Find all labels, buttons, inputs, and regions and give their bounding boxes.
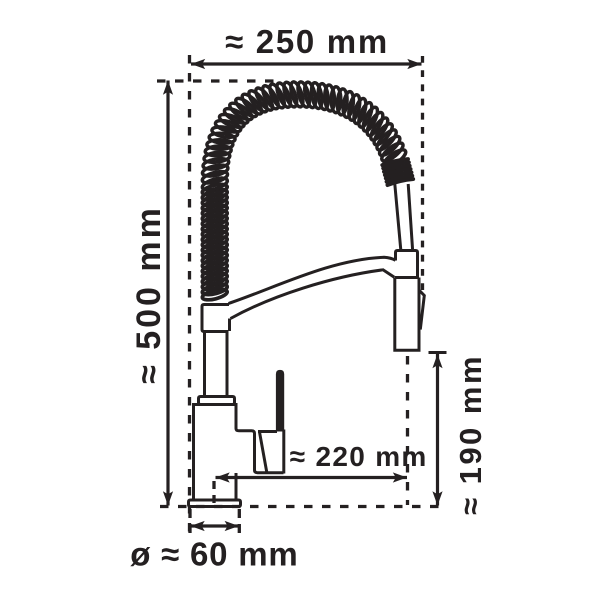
svg-text:≈ 190 mm: ≈ 190 mm <box>453 354 488 515</box>
svg-text:≈ 220 mm: ≈ 220 mm <box>290 441 428 472</box>
svg-text:ø ≈ 60 mm: ø ≈ 60 mm <box>130 536 298 573</box>
svg-text:≈ 500 mm: ≈ 500 mm <box>130 205 168 384</box>
svg-text:≈ 250 mm: ≈ 250 mm <box>225 23 389 60</box>
